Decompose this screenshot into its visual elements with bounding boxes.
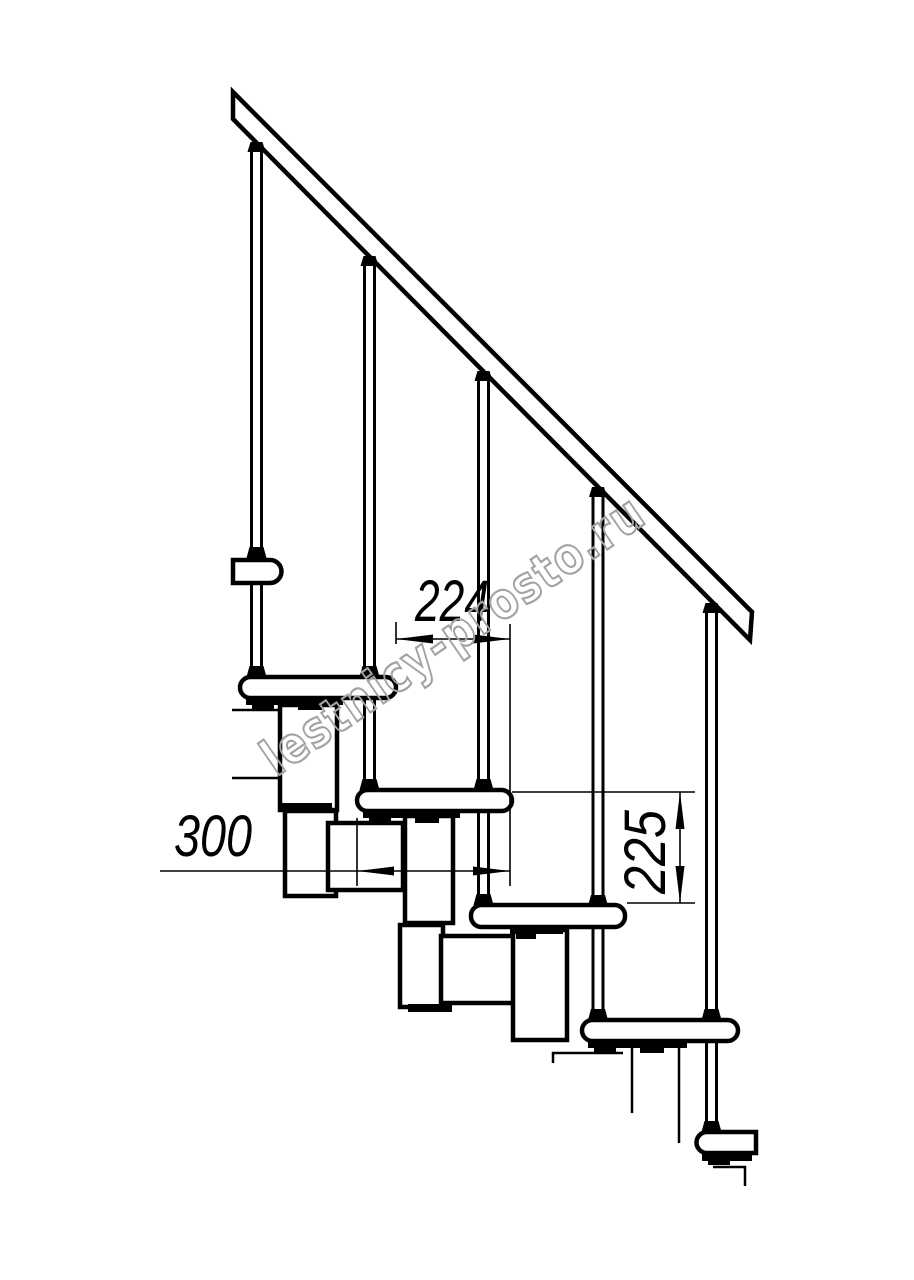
tread-5-bracket-lug: [708, 1160, 730, 1165]
tread-4-bracket: [588, 1040, 687, 1048]
tread-2-profile: [357, 790, 512, 811]
tread-3-bracket-lug: [516, 933, 536, 939]
tread-5-profile: [697, 1132, 757, 1153]
tread-4-profile: [582, 1020, 738, 1041]
baluster-1-collar-upper: [247, 547, 267, 558]
module-extension-2-base-plate: [408, 1004, 452, 1012]
baluster-2-rail-connector: [361, 256, 379, 266]
tread-2-bracket: [363, 810, 460, 818]
tread-1-bracket-lug-left: [252, 704, 274, 710]
baluster-1-rail-connector: [248, 142, 266, 152]
module-extension-2: [400, 925, 443, 1007]
landing-plate-profile: [233, 560, 282, 583]
dimension-225-value: 225: [613, 809, 678, 895]
tread-5: [697, 1132, 757, 1165]
baluster-5-rail-connector: [703, 603, 721, 613]
dimension-300-value: 300: [174, 804, 252, 869]
baluster-3-rail-connector: [475, 371, 493, 381]
landing-plate: [233, 560, 282, 583]
module-connector-box-2: [441, 936, 516, 1003]
tread-3-profile: [471, 905, 625, 927]
tread-4-bracket-lug-right: [640, 1047, 664, 1053]
technical-drawing-page: 224 300 225 lestnicy-prosto.ru: [0, 0, 914, 1280]
module-column-2: [405, 816, 453, 923]
module-connector-box-1: [328, 823, 403, 890]
module-column-3: [513, 930, 567, 1040]
tread-5-bracket: [702, 1152, 752, 1161]
tread-4-bracket-lug-left: [594, 1047, 616, 1053]
tread-2-bracket-lug-left: [369, 817, 391, 823]
staircase-side-view-drawing: 224 300 225 lestnicy-prosto.ru: [0, 0, 914, 1280]
tread-2-bracket-lug-right: [415, 817, 439, 823]
tread-3-bracket: [510, 926, 563, 934]
